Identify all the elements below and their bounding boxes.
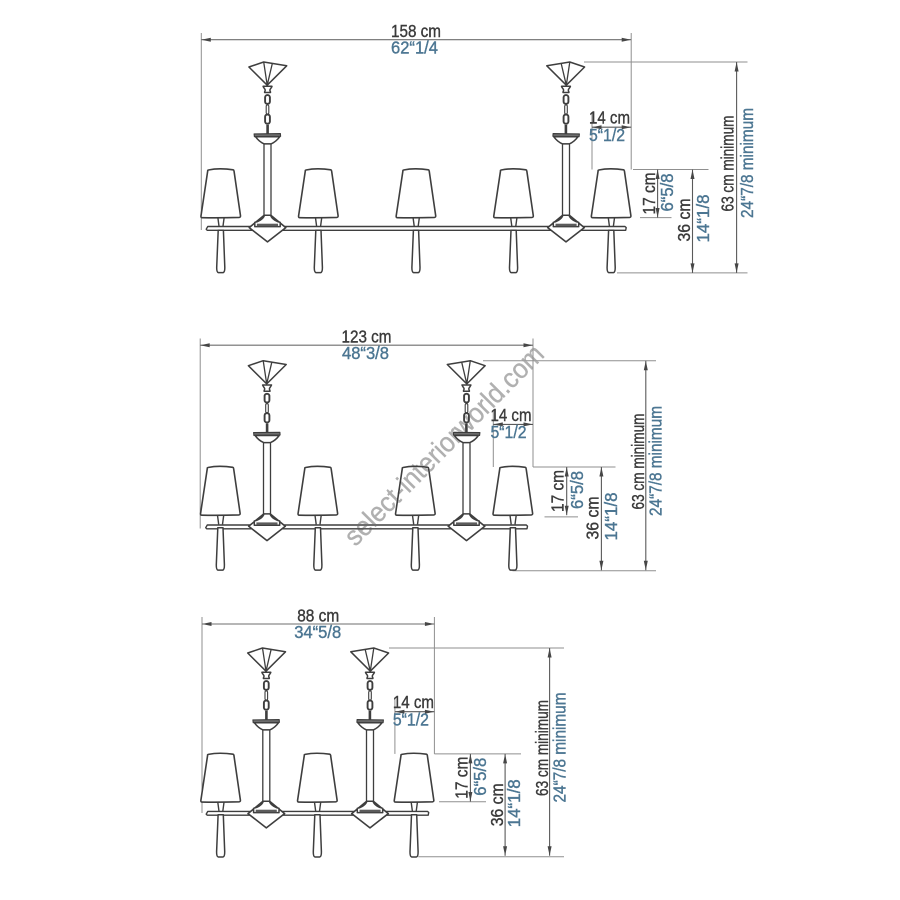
svg-text:36 cm: 36 cm <box>674 199 694 242</box>
svg-text:34“5/8: 34“5/8 <box>294 622 341 642</box>
svg-text:14“1/8: 14“1/8 <box>504 779 524 827</box>
svg-text:36 cm: 36 cm <box>583 497 603 540</box>
svg-text:62“1/4: 62“1/4 <box>391 38 438 58</box>
svg-text:24“7/8 minimum: 24“7/8 minimum <box>549 693 569 803</box>
svg-text:48“3/8: 48“3/8 <box>342 343 389 363</box>
svg-text:5“1/2: 5“1/2 <box>589 125 625 145</box>
svg-text:14“1/8: 14“1/8 <box>693 195 713 243</box>
svg-text:17 cm: 17 cm <box>548 470 568 512</box>
svg-text:5“1/2: 5“1/2 <box>491 422 527 442</box>
svg-text:63 cm minimum: 63 cm minimum <box>718 116 738 212</box>
svg-text:17 cm: 17 cm <box>639 173 659 215</box>
svg-text:24“7/8 minimum: 24“7/8 minimum <box>645 406 665 516</box>
svg-text:14“1/8: 14“1/8 <box>601 493 621 541</box>
svg-text:5“1/2: 5“1/2 <box>393 709 429 729</box>
svg-text:24“7/8 minimum: 24“7/8 minimum <box>737 108 757 218</box>
svg-text:17 cm: 17 cm <box>452 757 472 799</box>
